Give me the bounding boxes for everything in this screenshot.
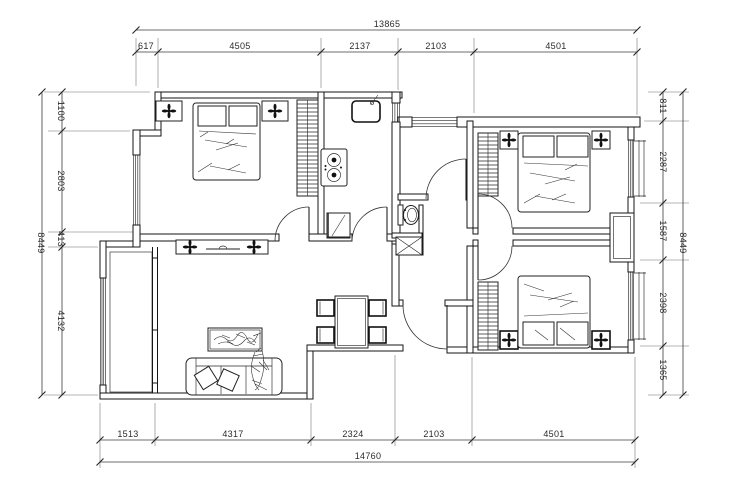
gas-stove [321,149,347,186]
dining-chair [317,300,334,316]
nightstand [156,101,182,121]
dining-table [335,296,368,348]
toilet [398,205,419,225]
dim-top-seg: 2137 [349,41,370,51]
dim-right-seg: 1587 [658,220,668,241]
entry-door [403,305,447,349]
dim-bottom-seg: 4501 [543,429,564,439]
dining-chair [369,327,386,343]
dim-top-seg: 4501 [545,41,566,51]
nightstand [592,131,610,149]
pillow [229,106,257,126]
pillow [523,322,554,345]
fridge [327,213,350,238]
wardrobe [297,100,318,196]
dim-right-seg: 2287 [658,151,668,172]
balcony [110,247,158,393]
dim-right-seg: 1365 [658,359,668,380]
dim-top-total: 13865 [374,19,401,29]
bathroom [396,159,466,255]
dining-chair [369,300,386,316]
window [134,155,140,225]
kitchen [321,95,387,241]
dim-right-seg: 811 [658,98,668,113]
dim-bottom-seg: 2324 [342,429,363,439]
window [412,117,457,126]
bedroom-2 [478,131,610,228]
dim-right-total: 8449 [678,232,688,253]
dim-left-seg: 2803 [56,170,66,191]
double-bed [193,103,260,180]
dim-top-seg: 2103 [425,41,446,51]
dining-chair [317,327,334,343]
dim-top-seg: 617 [138,41,154,51]
sofa [186,348,282,395]
bedroom-3 [478,246,610,350]
dim-left-seg: 413 [56,231,66,247]
dimensions-right: 811 2287 1587 2398 1365 8449 [640,89,689,399]
dim-bottom-seg: 1513 [117,429,138,439]
door-swing [426,159,466,199]
balcony-slider [153,247,158,393]
coffee-table [208,328,262,351]
pillow [523,136,554,157]
window [100,278,105,385]
window [628,272,646,340]
nightstand [500,331,518,349]
window [628,140,646,197]
wardrobe [478,133,498,196]
bedroom-1 [156,100,318,241]
nightstand [262,101,288,121]
door-swing [275,207,309,241]
door-swing [478,246,512,280]
door-swing [478,194,512,228]
wardrobe [478,282,498,350]
dim-bottom-seg: 4317 [222,429,243,439]
pillow [557,322,588,345]
floor-plan-canvas: 13865 617 4505 2137 2103 4501 1513 4317 … [0,0,740,500]
dim-left-total: 8449 [36,232,46,253]
door-swing [352,207,387,241]
pillow [198,106,226,126]
nightstand [592,331,610,349]
double-bed [518,276,590,348]
ac-bay [610,213,634,262]
floor-plan-page: 13865 617 4505 2137 2103 4501 1513 4317 … [0,0,740,500]
tv-cabinet [176,240,268,254]
nightstand [500,131,518,149]
dimensions-bottom: 1513 4317 2324 2103 4501 14760 [97,355,639,468]
double-bed [518,133,590,212]
dim-right-seg: 2398 [658,292,668,313]
kitchen-sink [352,95,380,122]
dimensions-top: 13865 617 4505 2137 2103 4501 [133,19,641,115]
dim-left-seg: 1100 [56,101,66,122]
dim-bottom-total: 14760 [355,451,382,461]
dim-bottom-seg: 2103 [423,429,444,439]
pillow [557,136,588,157]
vent-shaft [396,237,422,255]
dining-set [317,296,386,348]
dim-top-seg: 4505 [229,41,250,51]
dim-left-seg: 4132 [56,310,66,331]
